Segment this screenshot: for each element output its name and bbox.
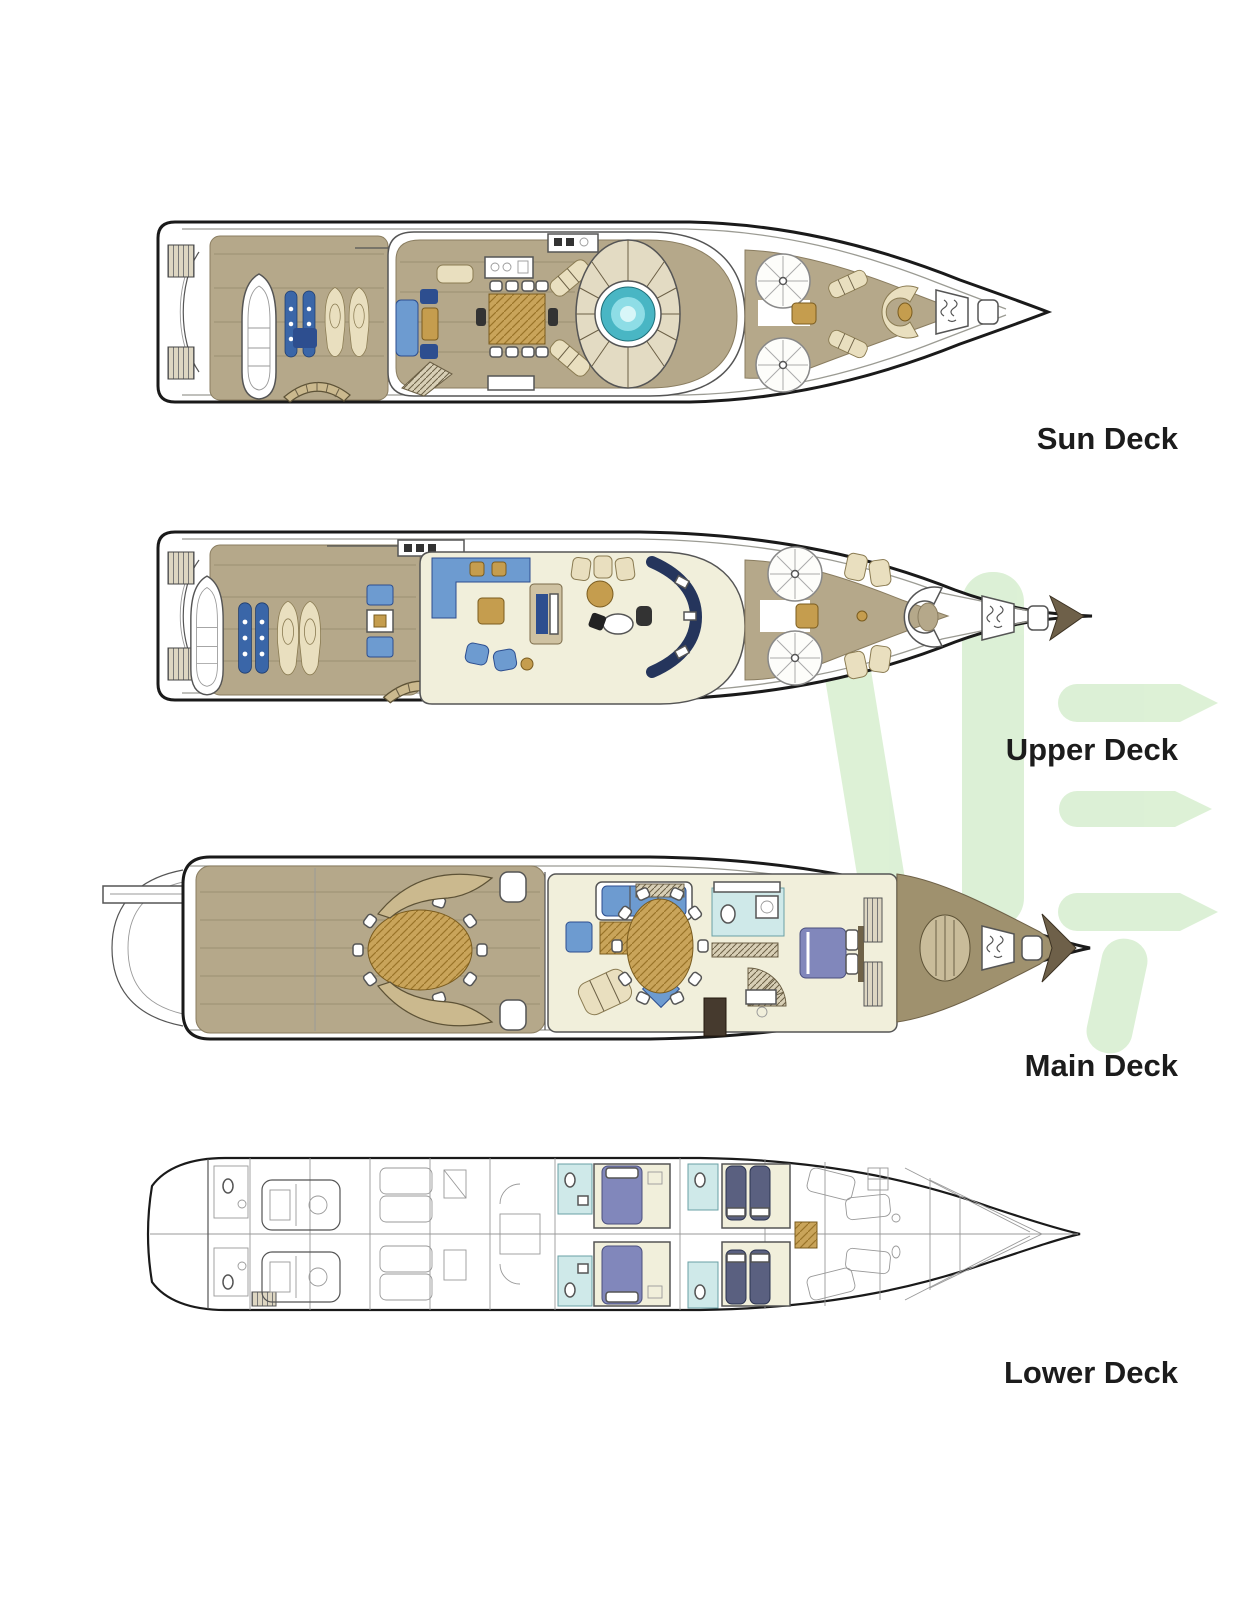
- seabob: [277, 601, 298, 675]
- deck-hatch: [1022, 936, 1042, 960]
- day-head: [712, 882, 784, 936]
- coffee-table: [478, 598, 504, 624]
- main-salon: [545, 872, 897, 1036]
- lower-deck-label: Lower Deck: [1004, 1355, 1178, 1391]
- umbrella-icon: [756, 338, 810, 392]
- vanity: [746, 990, 776, 1004]
- sideboard: [712, 943, 778, 957]
- kayak: [256, 603, 269, 673]
- upper-deck-plan: [140, 498, 1110, 733]
- tv-cabinet: [530, 584, 562, 644]
- console: [488, 376, 534, 390]
- bow-sunpad: [920, 915, 970, 981]
- aft-tables: [367, 585, 393, 657]
- main-foredeck: [897, 874, 1076, 1022]
- anchor-winch: [936, 290, 968, 334]
- yacht-deck-plan-page: Sun Deck: [0, 0, 1250, 1619]
- stern-ladder: [168, 552, 194, 584]
- upper-foredeck: [745, 547, 1084, 685]
- main-aft-deck: [196, 866, 545, 1033]
- armchair: [492, 648, 517, 672]
- stern-ladder: [252, 1292, 276, 1306]
- umbrella-icon: [768, 631, 822, 685]
- wardrobe: [864, 898, 882, 942]
- deck-hatch: [978, 300, 998, 324]
- tender-boat: [191, 576, 223, 695]
- kayak: [239, 603, 252, 673]
- sun-deck-label: Sun Deck: [1037, 421, 1178, 457]
- umbrella-icon: [768, 547, 822, 601]
- armchair: [464, 642, 490, 666]
- media-cabinet: [704, 998, 726, 1036]
- stern-ladder: [168, 648, 194, 680]
- deck-table: [792, 303, 816, 324]
- anchor-winch: [982, 926, 1014, 970]
- upper-deck-label: Upper Deck: [1006, 732, 1178, 768]
- tender-boat: [242, 274, 276, 399]
- sun-deckhouse: [388, 232, 745, 396]
- main-deck-label: Main Deck: [1025, 1048, 1178, 1084]
- jacuzzi: [576, 240, 680, 388]
- deck-hatch: [1028, 606, 1048, 630]
- helm-seat: [636, 606, 652, 626]
- bar: [485, 257, 533, 278]
- loveseat: [437, 265, 473, 283]
- skylounge: [420, 552, 745, 704]
- umbrella-icon: [756, 254, 810, 308]
- wardrobe: [864, 962, 882, 1006]
- console: [548, 234, 598, 252]
- main-deck-plan: [95, 845, 1105, 1055]
- sun-deck-plan: [140, 198, 1100, 428]
- anchor-winch: [982, 596, 1014, 640]
- deck-table: [796, 604, 818, 628]
- seabob: [299, 601, 320, 675]
- side-table: [566, 922, 592, 952]
- dresser: [795, 1222, 817, 1248]
- lower-deck-plan: [130, 1145, 1095, 1325]
